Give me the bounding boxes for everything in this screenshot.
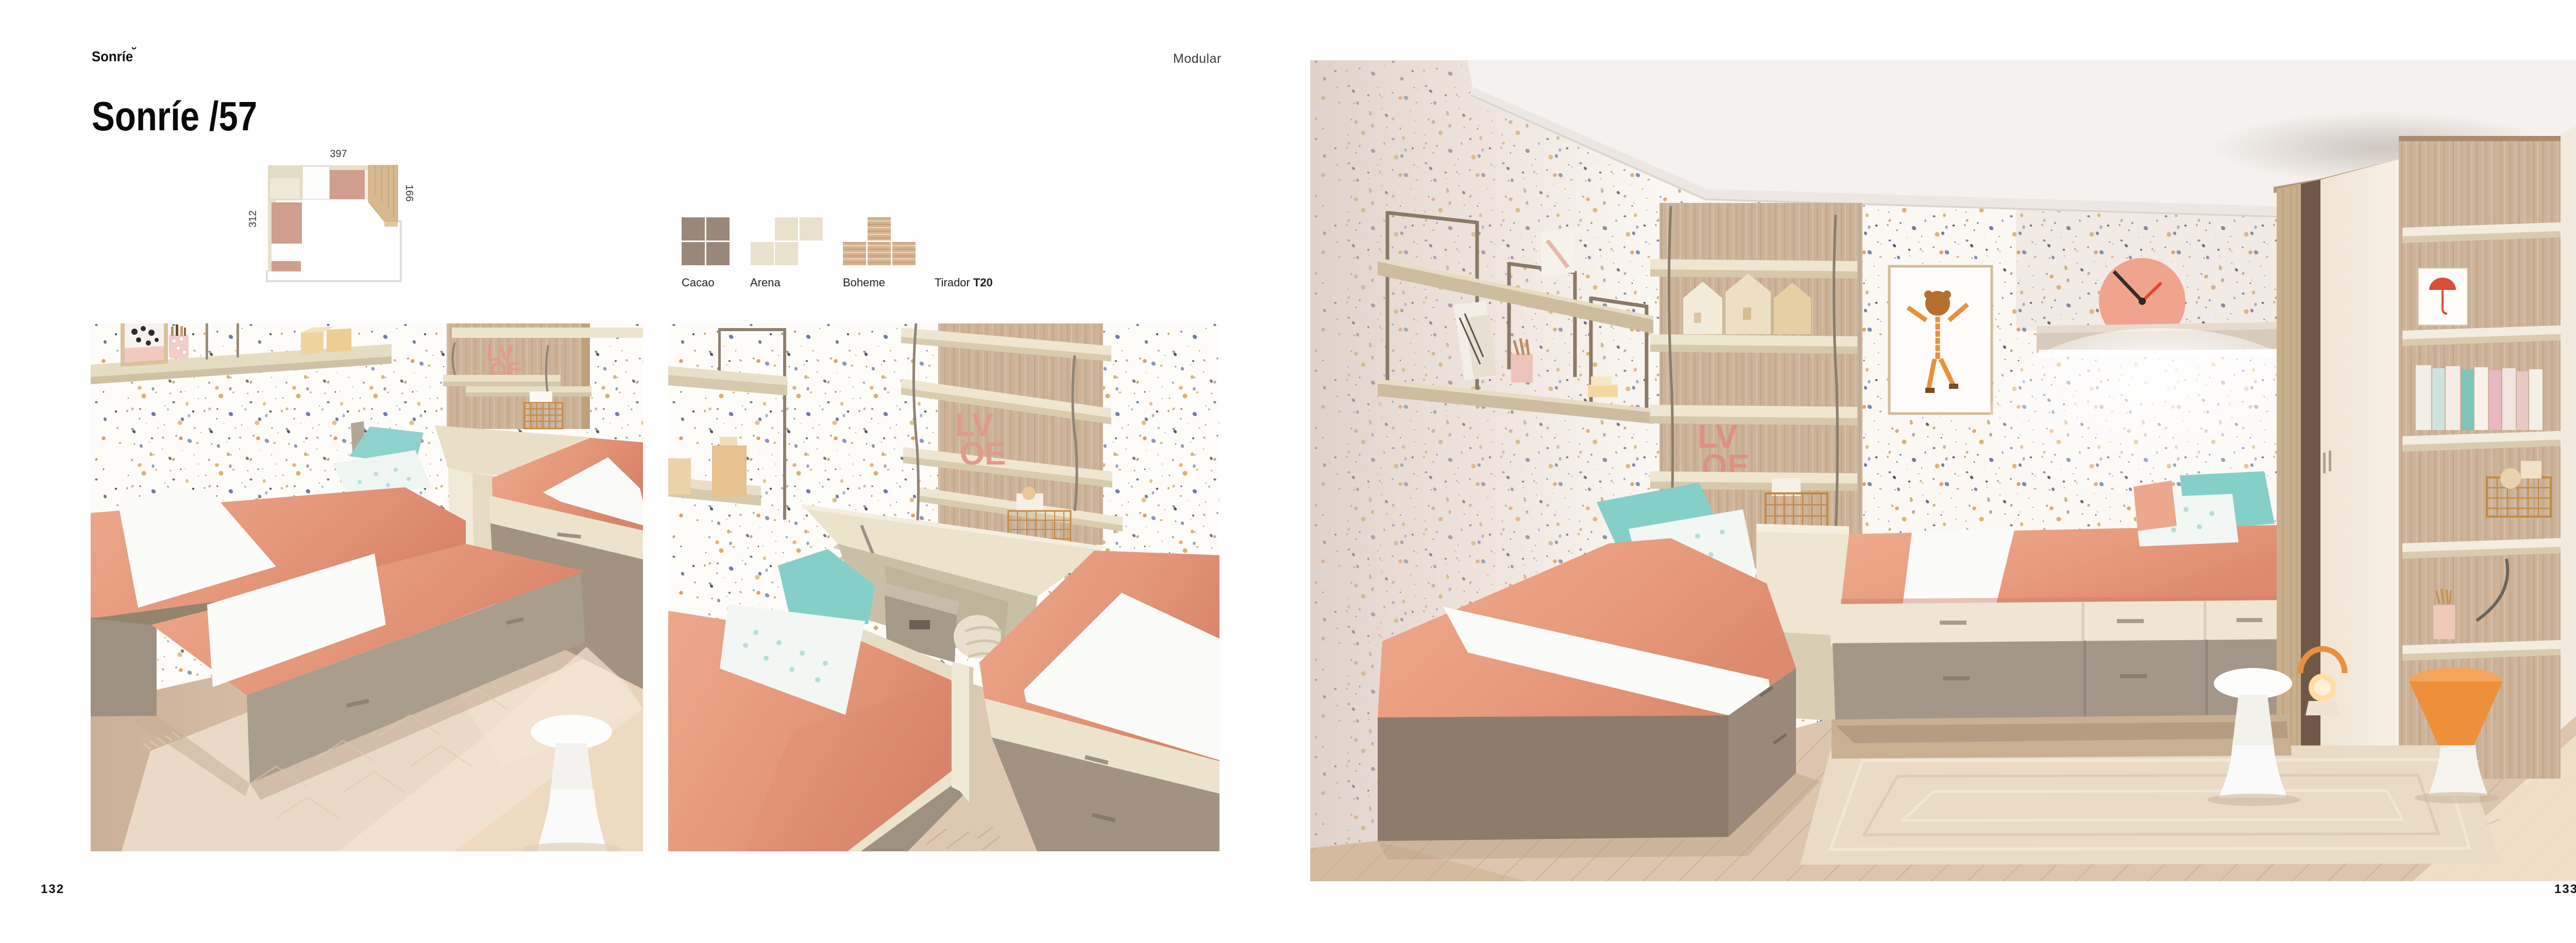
svg-text:312: 312: [247, 210, 259, 227]
svg-text:397: 397: [330, 148, 347, 160]
svg-text:OE: OE: [960, 436, 1006, 472]
svg-text:166: 166: [403, 184, 415, 201]
